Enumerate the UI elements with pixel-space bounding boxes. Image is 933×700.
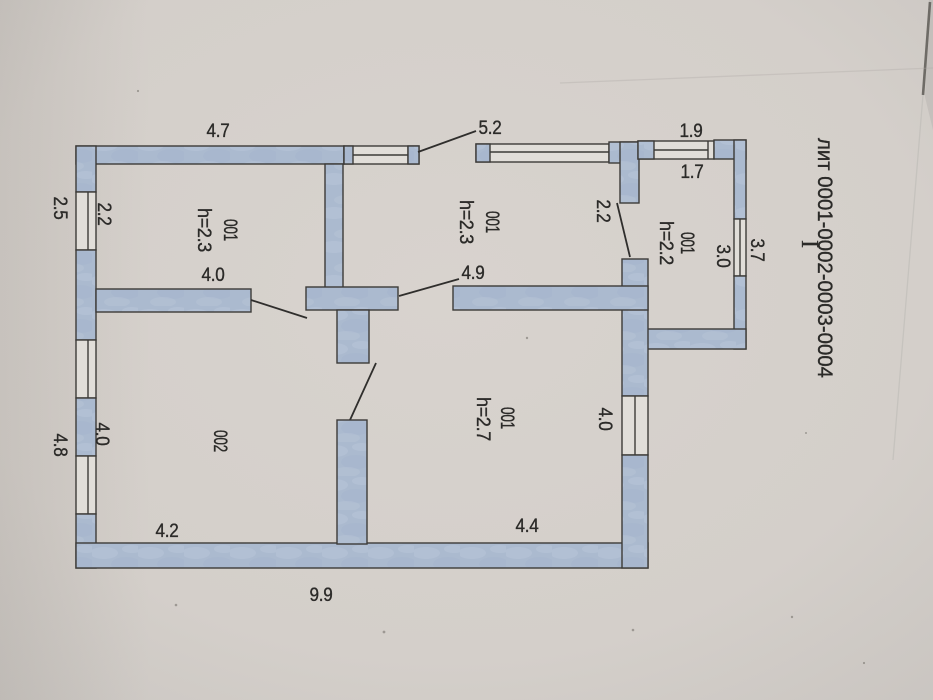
svg-text:4.0: 4.0 [594, 408, 615, 431]
svg-text:h=2.3: h=2.3 [193, 208, 214, 252]
svg-text:9.9: 9.9 [310, 585, 333, 606]
svg-text:4.9: 4.9 [462, 263, 485, 284]
svg-text:2.2: 2.2 [592, 200, 613, 223]
svg-text:4.0: 4.0 [202, 265, 225, 286]
svg-text:001: 001 [481, 211, 502, 233]
svg-text:3.7: 3.7 [746, 239, 767, 262]
svg-text:002: 002 [209, 430, 230, 452]
svg-text:I: I [796, 240, 822, 248]
svg-text:4.8: 4.8 [49, 434, 70, 457]
svg-text:001: 001 [496, 407, 517, 429]
svg-text:5.2: 5.2 [479, 118, 502, 139]
svg-text:1.9: 1.9 [680, 121, 703, 142]
svg-text:001: 001 [219, 219, 240, 241]
svg-text:h=2.7: h=2.7 [472, 397, 493, 441]
svg-text:h=2.2: h=2.2 [655, 221, 676, 265]
svg-text:3.0: 3.0 [712, 245, 733, 268]
svg-text:4.7: 4.7 [207, 121, 230, 142]
svg-text:1.7: 1.7 [681, 162, 704, 183]
svg-text:4.4: 4.4 [516, 516, 540, 537]
svg-text:4.2: 4.2 [156, 521, 179, 542]
svg-text:2.5: 2.5 [49, 197, 70, 220]
svg-text:001: 001 [676, 232, 697, 254]
svg-text:лит 0001-0002-0003-0004: лит 0001-0002-0003-0004 [813, 138, 836, 378]
svg-text:2.2: 2.2 [93, 203, 114, 226]
svg-text:4.0: 4.0 [91, 423, 112, 446]
svg-text:h=2.3: h=2.3 [455, 200, 476, 244]
